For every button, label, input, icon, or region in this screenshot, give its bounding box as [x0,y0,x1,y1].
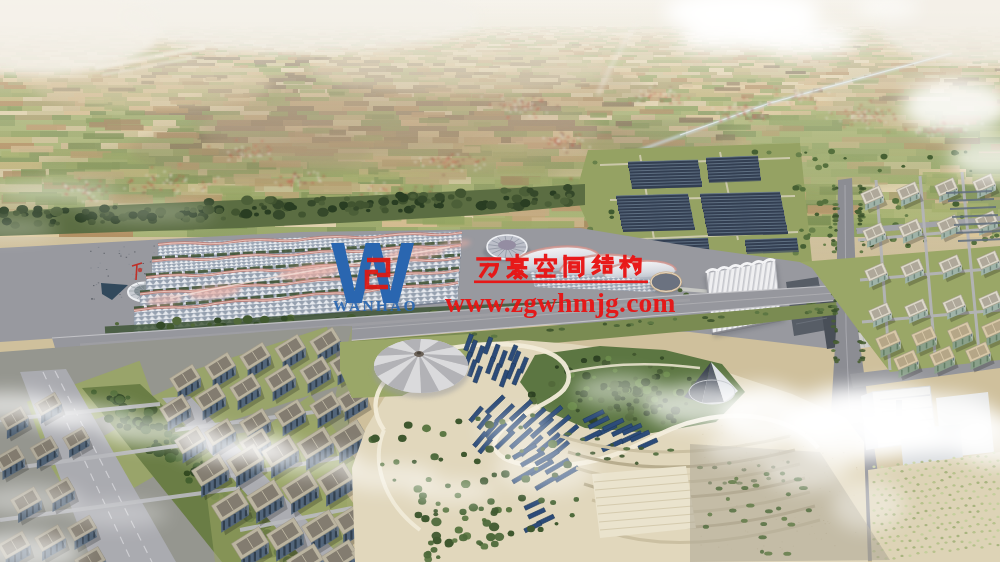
svg-text:www.zgwhmjg.com: www.zgwhmjg.com [445,287,676,318]
svg-text:WANHAO: WANHAO [333,297,418,314]
